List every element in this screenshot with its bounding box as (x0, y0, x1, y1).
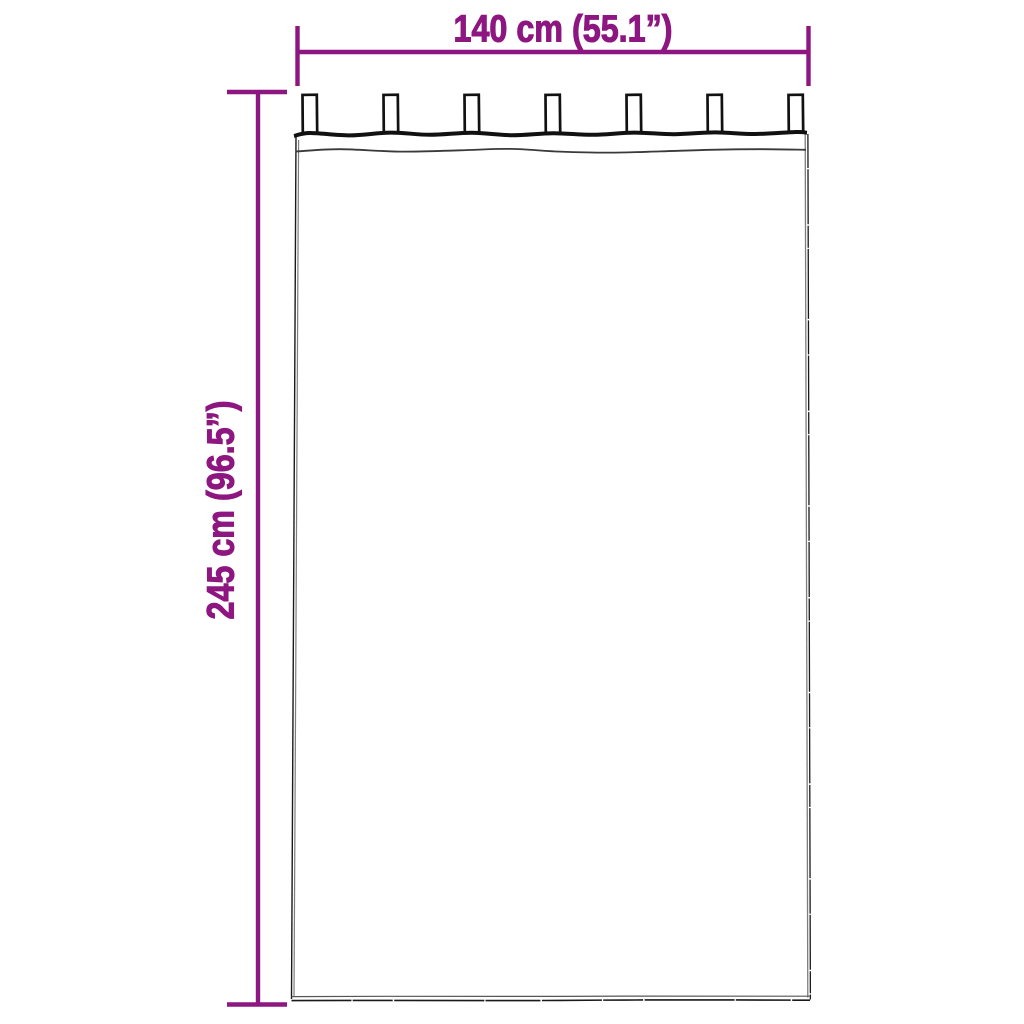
svg-text:140 cm (55.1”): 140 cm (55.1”) (454, 9, 673, 51)
svg-text:245 cm (96.5”): 245 cm (96.5”) (201, 401, 243, 620)
